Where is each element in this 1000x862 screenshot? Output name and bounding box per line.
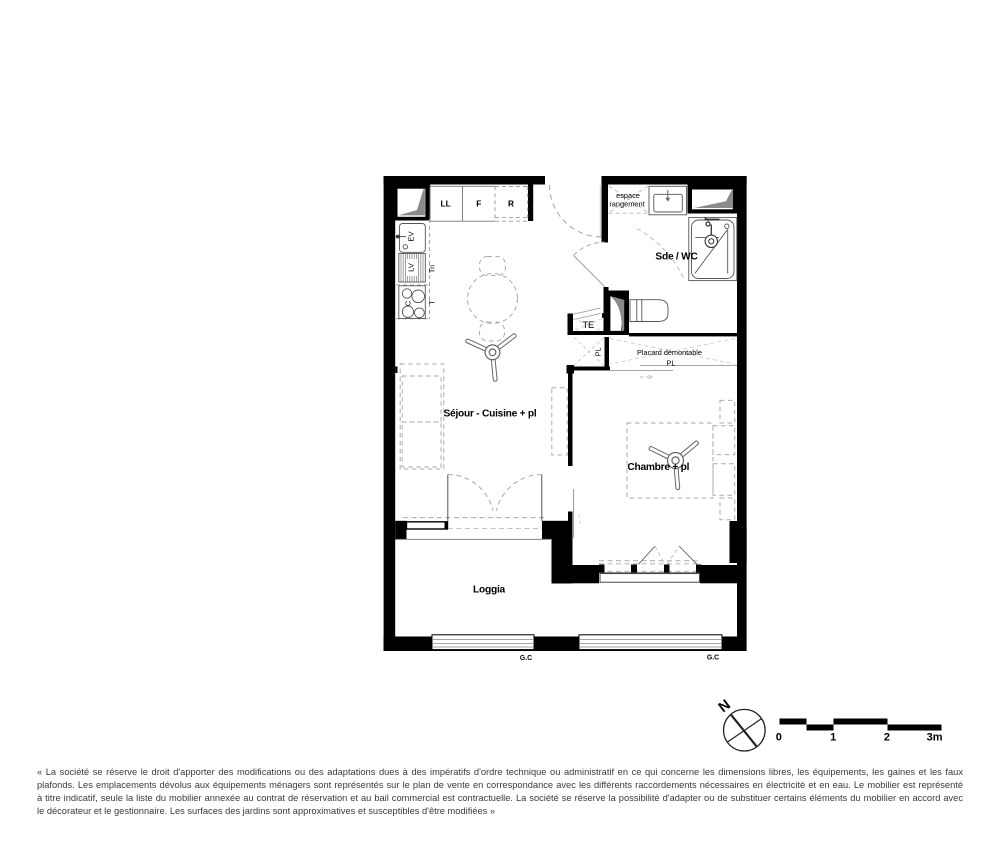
svg-text:PL: PL bbox=[594, 347, 603, 356]
svg-text:3m: 3m bbox=[927, 732, 943, 744]
svg-text:LL: LL bbox=[441, 198, 451, 208]
svg-text:LV: LV bbox=[407, 262, 416, 272]
svg-text:N: N bbox=[716, 697, 734, 716]
svg-text:Tri: Tri bbox=[430, 265, 437, 273]
svg-text:R: R bbox=[508, 198, 514, 208]
svg-text:Sde / WC: Sde / WC bbox=[655, 251, 698, 262]
svg-text:Séjour - Cuisine + pl: Séjour - Cuisine + pl bbox=[444, 409, 537, 420]
svg-text:rangement: rangement bbox=[609, 200, 644, 209]
svg-text:2: 2 bbox=[884, 732, 890, 744]
svg-text:C: C bbox=[404, 300, 413, 306]
svg-text:T: T bbox=[430, 299, 437, 304]
svg-text:PL: PL bbox=[667, 358, 676, 367]
svg-text:EV: EV bbox=[407, 231, 416, 242]
svg-text:Placard démontable: Placard démontable bbox=[637, 348, 702, 357]
svg-text:G.C: G.C bbox=[520, 655, 532, 662]
svg-text:Loggia: Loggia bbox=[473, 584, 505, 595]
svg-text:Chambre + pl: Chambre + pl bbox=[627, 462, 689, 473]
svg-text:G.C: G.C bbox=[707, 654, 719, 661]
svg-text:1: 1 bbox=[830, 732, 836, 744]
svg-text:0: 0 bbox=[776, 732, 782, 744]
svg-text:TE: TE bbox=[583, 320, 594, 330]
svg-text:F: F bbox=[476, 198, 481, 208]
